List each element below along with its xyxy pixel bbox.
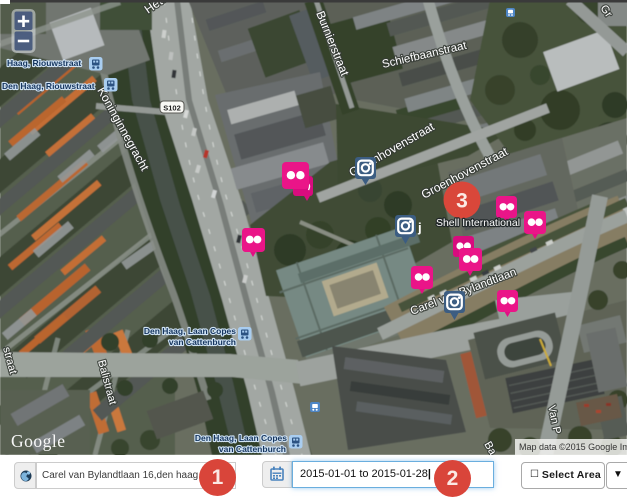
svg-text:Den Haag, Laan Copes: Den Haag, Laan Copes [195, 433, 287, 443]
svg-text:van Cattenburch: van Cattenburch [219, 444, 286, 454]
svg-text:Shell International: Shell International [436, 217, 520, 229]
svg-text:Haag, Riouwstraat: Haag, Riouwstraat [7, 58, 81, 68]
svg-text:Map data ©2015 Google Im: Map data ©2015 Google Im [519, 442, 627, 452]
svg-text:Den Haag, Riouwstraat: Den Haag, Riouwstraat [2, 81, 95, 91]
svg-text:3: 3 [456, 190, 468, 213]
svg-text:j: j [417, 220, 422, 235]
svg-text:S102: S102 [163, 104, 181, 113]
svg-text:Google: Google [11, 431, 66, 451]
svg-text:Den Haag, Laan Copes: Den Haag, Laan Copes [144, 326, 236, 336]
svg-text:van Cattenburch: van Cattenburch [169, 337, 236, 347]
